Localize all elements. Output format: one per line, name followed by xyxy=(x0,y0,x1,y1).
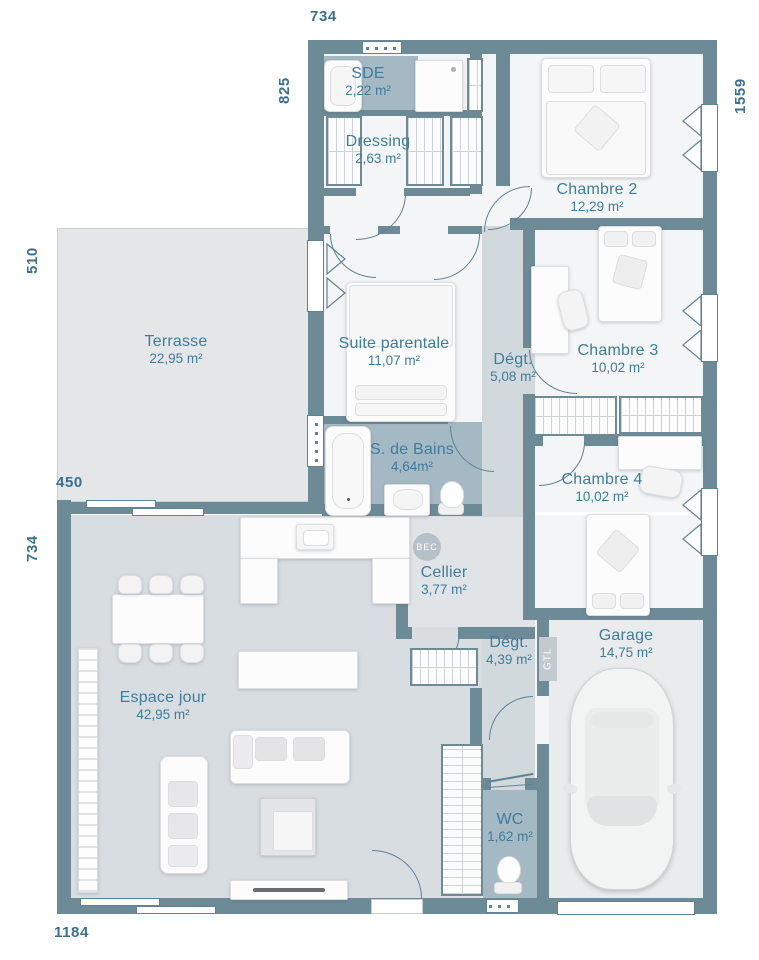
pillow xyxy=(548,65,594,93)
wall-left-lower xyxy=(57,500,71,912)
dining-chair xyxy=(118,644,142,663)
sofa-main xyxy=(230,730,350,784)
sliding-window-living-b xyxy=(136,906,216,914)
closet-espace-jour xyxy=(410,648,478,686)
window-casement-icon xyxy=(680,104,702,172)
dining-chair xyxy=(180,644,204,663)
dim-bottom: 1184 xyxy=(54,924,89,941)
shower-sde xyxy=(324,60,362,112)
wall-dressing-bottom-a xyxy=(322,188,356,196)
wardrobe-dressing-mid xyxy=(406,116,444,186)
sliding-window-living-a xyxy=(80,898,160,906)
toilet-bowl xyxy=(440,481,464,508)
throw-pillow xyxy=(612,254,649,291)
window-chambre4 xyxy=(701,488,718,556)
coffee-table xyxy=(260,798,316,856)
car-rear-window xyxy=(591,712,653,728)
toilet-bowl xyxy=(497,856,521,884)
sliding-door-terrace-b xyxy=(132,508,204,516)
pillow xyxy=(620,593,644,609)
window-chambre2 xyxy=(701,104,718,172)
pillow xyxy=(592,593,616,609)
window-dash xyxy=(366,47,398,50)
shower-tray xyxy=(330,66,356,106)
bed-double-chambre2 xyxy=(541,58,651,178)
window-casement-icon xyxy=(680,294,702,362)
window-dash xyxy=(315,420,318,462)
wall-dressing-bottom-b xyxy=(404,188,470,196)
throw-pillow xyxy=(595,528,640,573)
tv-screen xyxy=(253,888,325,892)
closet-chambre3 xyxy=(533,396,617,436)
bed-double-suite xyxy=(346,282,456,422)
floor-plan: BEC GTL SDE 2,22 m² Dressing 2,63 m² Cha… xyxy=(0,0,759,960)
duvet xyxy=(349,285,453,347)
pillow xyxy=(604,231,628,247)
wardrobe-entry xyxy=(441,744,483,896)
tv-stand xyxy=(230,880,348,900)
wall-cellier-bottom-a xyxy=(396,627,412,639)
dim-left-terrace: 510 xyxy=(24,218,41,274)
bookshelf xyxy=(78,648,98,893)
sink-bath xyxy=(384,484,430,516)
window-sde-top xyxy=(362,41,402,54)
toilet-tank xyxy=(494,882,522,894)
wardrobe-dressing-right xyxy=(450,116,483,186)
gtl-label: GTL xyxy=(543,648,554,670)
dim-terrace-bottom: 450 xyxy=(56,474,83,491)
sofa-side xyxy=(160,756,208,874)
window-dash xyxy=(489,905,515,908)
sofa-chaise xyxy=(233,735,253,769)
wall-chambre2-left xyxy=(496,54,510,186)
garage-door xyxy=(557,901,695,915)
car-windshield xyxy=(587,796,657,826)
kitchen-island xyxy=(238,651,358,689)
shower-square xyxy=(415,60,463,112)
toilet-wc xyxy=(492,854,524,896)
kitchen-sink xyxy=(296,524,334,550)
wardrobe-sde xyxy=(467,58,483,112)
floor-terrasse xyxy=(57,228,310,502)
wall-suite-top-c xyxy=(448,226,482,234)
window-casement-icon xyxy=(680,488,702,556)
kitchen-counter-right xyxy=(372,558,410,604)
bed-single-chambre4 xyxy=(586,514,650,616)
sink-basin xyxy=(393,489,423,510)
car xyxy=(570,668,674,890)
sink-basin xyxy=(303,530,329,546)
desk-chambre4 xyxy=(618,436,702,470)
dim-right: 1559 xyxy=(732,38,749,114)
dining-chair xyxy=(180,575,204,594)
window-suite-left xyxy=(307,240,324,312)
window-wc-bottom xyxy=(486,899,519,913)
bathtub-drain xyxy=(347,498,350,501)
gtl-badge: GTL xyxy=(539,637,557,681)
wall-garage-left-lower xyxy=(537,744,549,898)
bathtub xyxy=(325,426,371,516)
sheet-fold xyxy=(355,403,447,416)
shower-drain xyxy=(451,67,456,72)
dining-table xyxy=(112,594,204,644)
wall-suite-top-a xyxy=(322,226,330,234)
sofa-cushion xyxy=(168,813,198,839)
closet-chambre4 xyxy=(619,396,703,434)
wall-corridor2-left xyxy=(470,688,482,744)
kitchen-counter-left xyxy=(240,558,278,604)
entry-door-sill xyxy=(371,899,423,914)
window-chambre3 xyxy=(701,294,718,362)
sofa-cushion xyxy=(168,781,198,807)
toilet-bath xyxy=(436,480,466,516)
sofa-cushion xyxy=(168,845,198,867)
coffee-table-top xyxy=(273,811,313,851)
sofa-cushion xyxy=(293,737,325,761)
bed-single-chambre3 xyxy=(598,226,662,322)
dim-left-upper: 825 xyxy=(276,42,293,104)
window-bath-left xyxy=(307,415,324,467)
bec-badge: BEC xyxy=(413,533,441,561)
dining-chair xyxy=(149,575,173,594)
pillow xyxy=(600,65,646,93)
sofa-cushion xyxy=(255,737,287,761)
dim-top: 734 xyxy=(310,8,337,25)
pillow xyxy=(632,231,656,247)
sliding-door-terrace-a xyxy=(86,500,156,508)
dim-left-lower: 734 xyxy=(24,502,41,562)
dining-chair xyxy=(149,644,173,663)
sheet-fold xyxy=(355,385,447,400)
bec-label: BEC xyxy=(416,542,438,552)
wall-cellier-bottom-b xyxy=(458,627,535,639)
wardrobe-dressing-left xyxy=(326,116,362,186)
dining-chair xyxy=(118,575,142,594)
